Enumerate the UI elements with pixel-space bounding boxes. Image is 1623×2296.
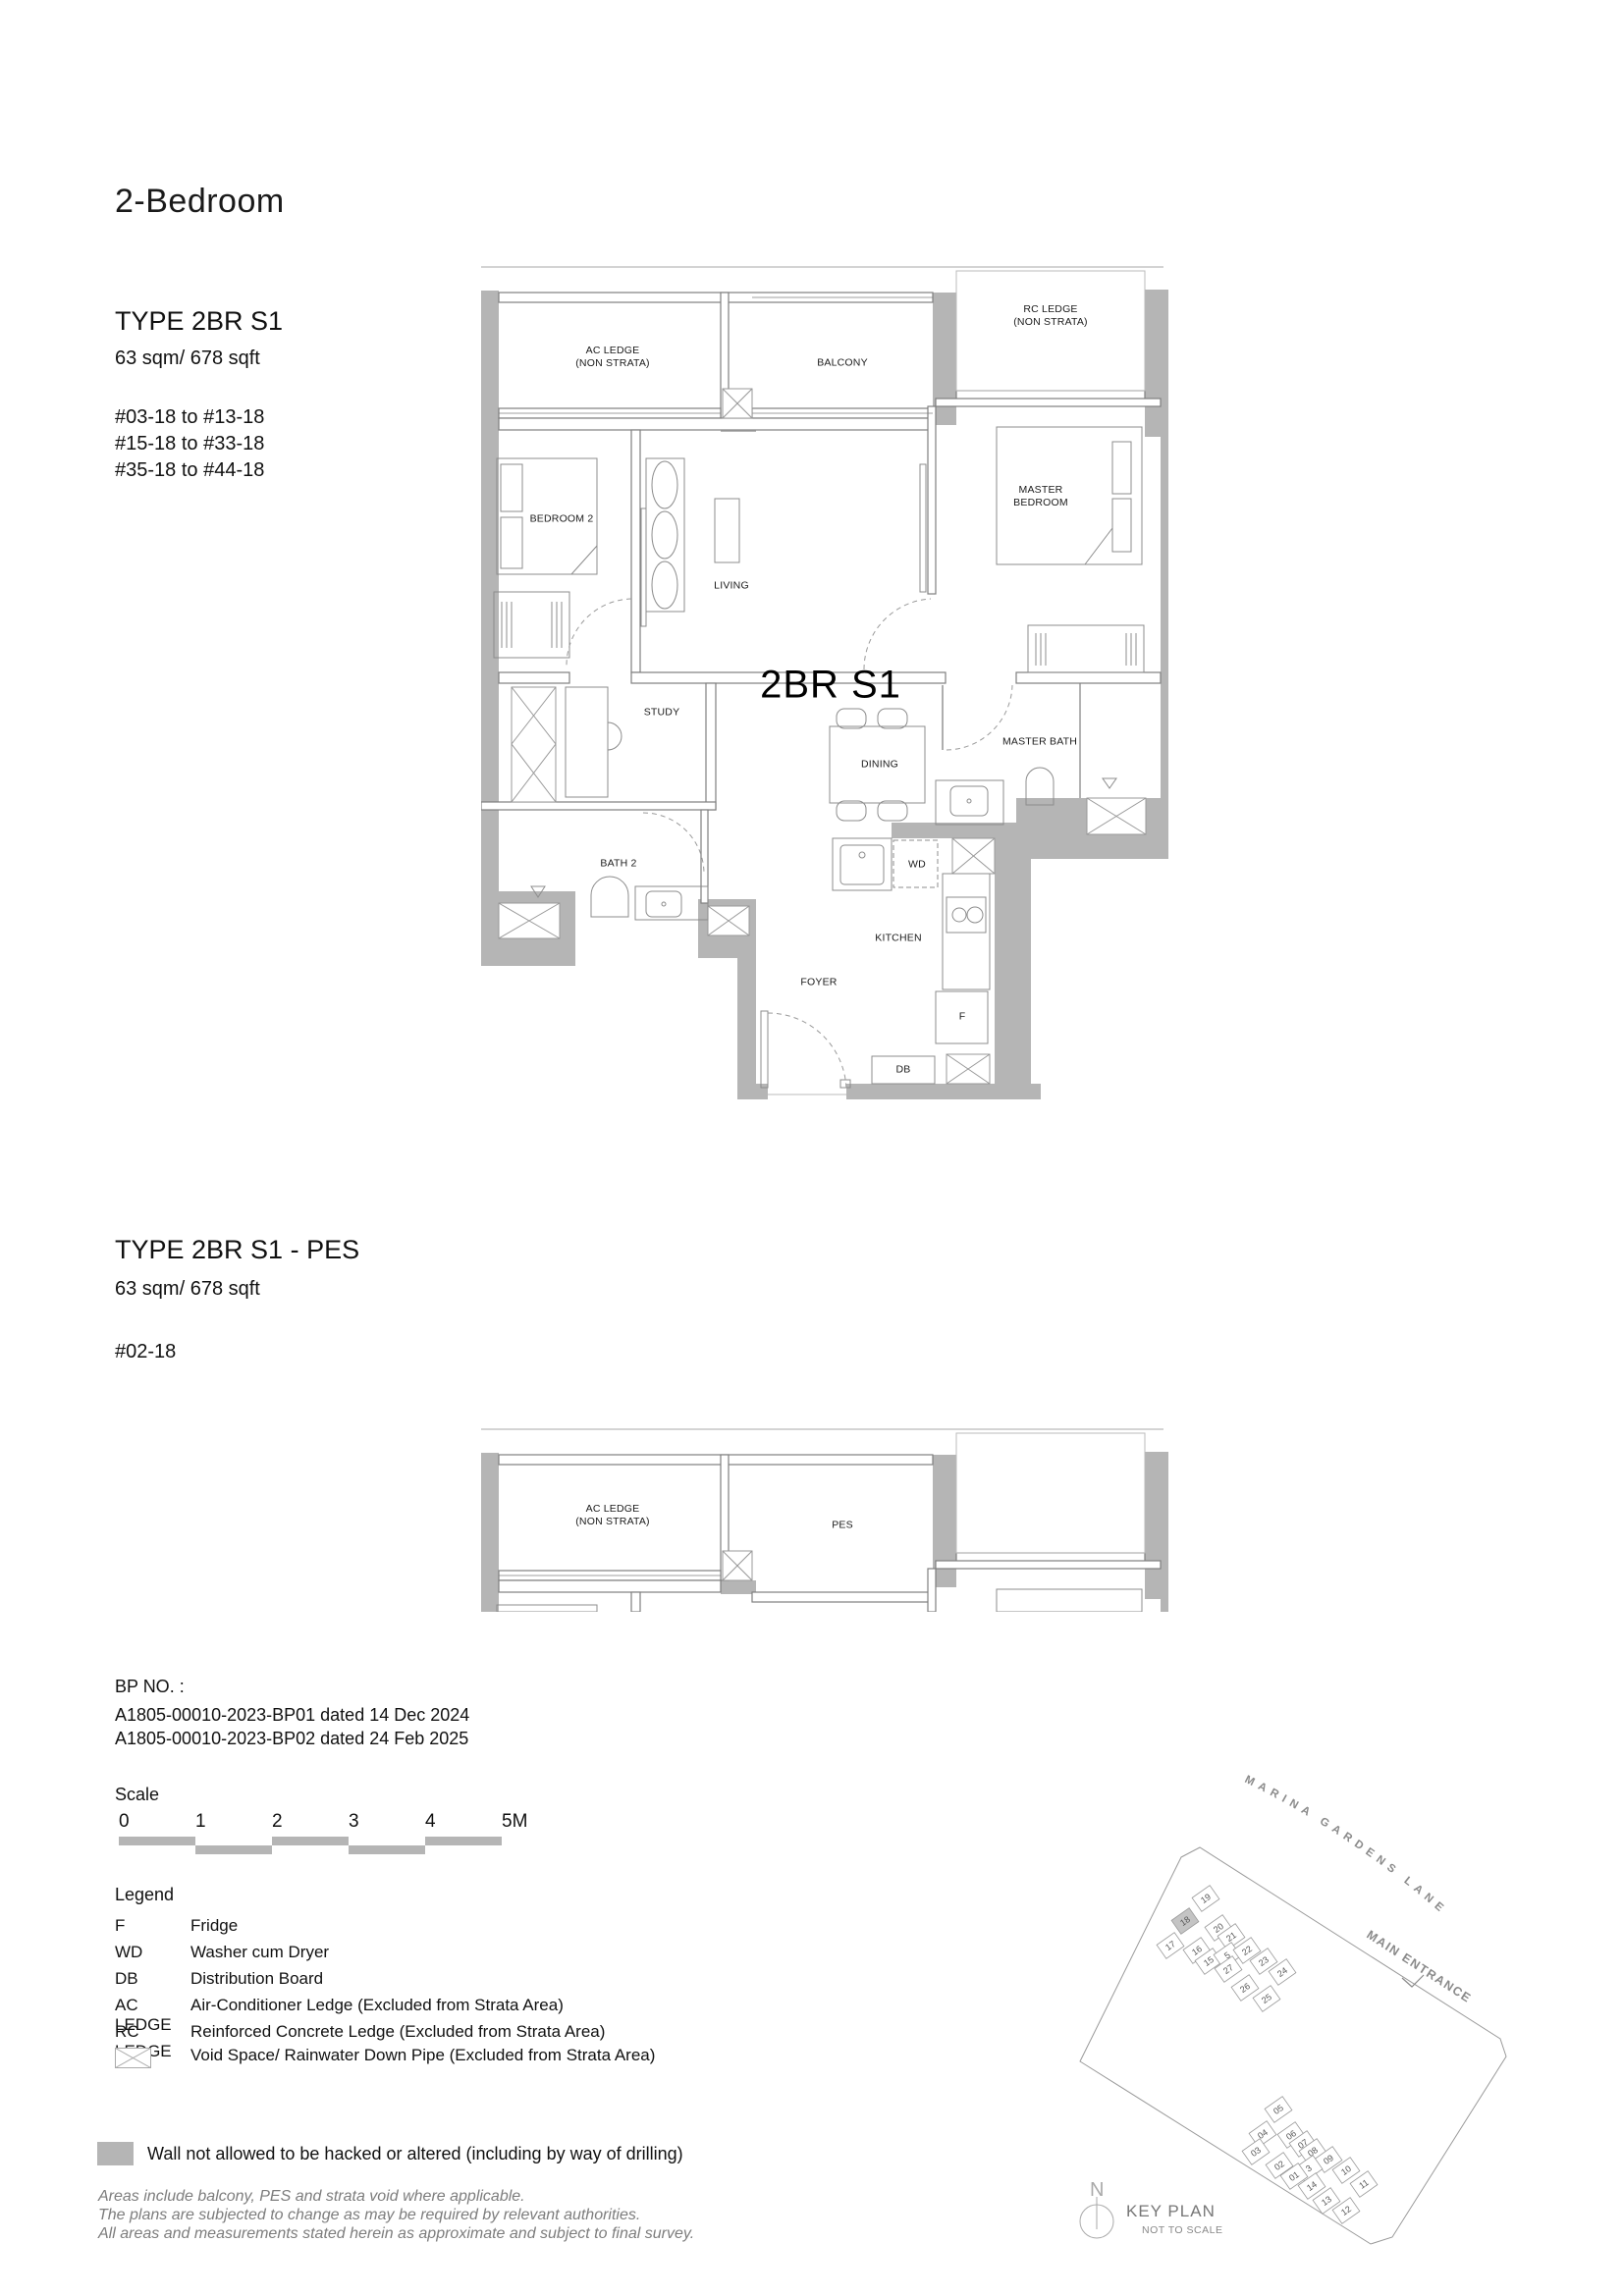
main-floorplan: AC LEDGE (NON STRATA) BALCONY RC LEDGE (… [481, 263, 1178, 1103]
void-box-kitchen [952, 838, 995, 874]
road-text: MARINA GARDENS LANE [1243, 1774, 1450, 1917]
label-rc-ledge: RC LEDGE (NON STRATA) [1011, 303, 1090, 329]
bp-heading: BP NO. : [115, 1675, 185, 1698]
svg-text:N: N [1090, 2179, 1104, 2201]
scale-tick: 5M [502, 1811, 527, 1833]
type1-units: #03-18 to #13-18#15-18 to #33-18#35-18 t… [115, 404, 264, 484]
unit-range: #03-18 to #13-18 [115, 404, 264, 431]
keyplan-unit-17: 17 [1157, 1933, 1184, 1959]
void-box-db [947, 1054, 990, 1084]
label-pes-ac-ledge: AC LEDGE (NON STRATA) [573, 1503, 652, 1528]
scale-bar: 0 1 2 3 4 5M [119, 1811, 531, 1856]
type2-units: #02-18 [115, 1339, 176, 1365]
label-unit-type: 2BR S1 [760, 664, 901, 708]
furniture [494, 427, 1144, 1095]
void-box-bottom-left [499, 903, 560, 938]
key-plan-drawing: MARINA GARDENS LANE MAIN ENTRANCE 191817… [1075, 1762, 1586, 2268]
label-pes: PES [832, 1520, 853, 1532]
scale-ticks: 0 1 2 3 4 5M [119, 1811, 531, 1835]
label-study: STUDY [644, 707, 680, 720]
type2-area: 63 sqm/ 678 sqft [115, 1276, 260, 1303]
scale-bar-segments [119, 1837, 531, 1856]
scale-tick: 2 [272, 1811, 283, 1833]
scale-tick: 3 [349, 1811, 359, 1833]
bp-line: A1805-00010-2023-BP02 dated 24 Feb 2025 [115, 1727, 469, 1750]
bp-lines: A1805-00010-2023-BP01 dated 14 Dec 2024A… [115, 1703, 469, 1750]
wall-note-text: Wall not allowed to be hacked or altered… [147, 2142, 683, 2165]
type1-area: 63 sqm/ 678 sqft [115, 346, 260, 372]
keyplan-unit-05: 05 [1265, 2097, 1292, 2123]
legend-void-desc: Void Space/ Rainwater Down Pipe (Exclude… [190, 2046, 665, 2065]
legend-list: F Fridge WD Washer cum Dryer DB Distribu… [115, 1916, 665, 2049]
north-compass-icon: N [1080, 2179, 1113, 2238]
disclaimer-line: All areas and measurements stated herein… [98, 2224, 694, 2243]
rc-ledge-outline [956, 271, 1145, 391]
legend-term: WD [115, 1943, 190, 1962]
legend-desc: Fridge [190, 1916, 665, 1936]
legend-desc: Washer cum Dryer [190, 1943, 665, 1962]
legend-heading: Legend [115, 1883, 174, 1906]
legend-term: F [115, 1916, 190, 1936]
label-fridge: F [959, 1011, 966, 1024]
void-box-tall-left [512, 687, 556, 802]
void-box-masterbath [1087, 798, 1146, 834]
label-db: DB [896, 1064, 911, 1077]
legend-row: AC LEDGE Air-Conditioner Ledge (Excluded… [115, 1996, 665, 2022]
disclaimer: Areas include balcony, PES and strata vo… [98, 2187, 694, 2243]
scale-label: Scale [115, 1783, 159, 1806]
legend-row: DB Distribution Board [115, 1969, 665, 1996]
key-plan: MARINA GARDENS LANE MAIN ENTRANCE 191817… [1075, 1762, 1586, 2268]
keyplan-unit-19: 19 [1192, 1886, 1219, 1912]
scale-tick: 4 [425, 1811, 436, 1833]
disclaimer-line: The plans are subjected to change as may… [98, 2206, 694, 2224]
type1-name: TYPE 2BR S1 [115, 306, 283, 337]
keyplan-cluster-a: 191817201621155222723262425 [1157, 1886, 1296, 2012]
unit-range: #02-18 [115, 1339, 176, 1365]
label-ac-ledge: AC LEDGE (NON STRATA) [573, 345, 652, 370]
keyplan-subtitle: NOT TO SCALE [1142, 2224, 1222, 2236]
pes-interior-walls [499, 1455, 1161, 1612]
void-box-acledge [723, 389, 752, 418]
legend-desc: Reinforced Concrete Ledge (Excluded from… [190, 2022, 665, 2042]
scale-tick: 1 [195, 1811, 206, 1833]
label-master-bedroom: MASTER BEDROOM [1001, 484, 1080, 509]
legend-term: DB [115, 1969, 190, 1989]
type2-name: TYPE 2BR S1 - PES [115, 1235, 359, 1265]
keyplan-unit-18: 18 [1171, 1908, 1199, 1935]
page-title: 2-Bedroom [115, 183, 285, 221]
label-wd: WD [908, 859, 926, 872]
legend-desc: Air-Conditioner Ledge (Excluded from Str… [190, 1996, 665, 2015]
master-bedroom-door-arc [864, 599, 931, 669]
disclaimer-line: Areas include balcony, PES and strata vo… [98, 2187, 694, 2206]
legend-desc: Distribution Board [190, 1969, 665, 1989]
label-balcony: BALCONY [817, 357, 868, 370]
pes-floorplan: AC LEDGE (NON STRATA) PES [481, 1425, 1178, 1612]
legend-void-row: Void Space/ Rainwater Down Pipe (Exclude… [115, 2048, 665, 2074]
label-master-bath: MASTER BATH [1001, 736, 1079, 749]
scale-tick: 0 [119, 1811, 130, 1833]
floorplan-page: 2-Bedroom TYPE 2BR S1 63 sqm/ 678 sqft #… [0, 0, 1623, 2296]
bp-line: A1805-00010-2023-BP01 dated 14 Dec 2024 [115, 1703, 469, 1727]
wall-swatch-icon [97, 2142, 134, 2165]
bedroom2-door-arc [567, 599, 631, 666]
pes-void-box [723, 1551, 752, 1580]
keyplan-title: KEY PLAN [1126, 2202, 1216, 2220]
unit-range: #15-18 to #33-18 [115, 431, 264, 457]
wall-note: Wall not allowed to be hacked or altered… [97, 2142, 843, 2165]
keyplan-cluster-b: 05040603070802093011014111312 [1242, 2097, 1378, 2224]
legend-row: F Fridge [115, 1916, 665, 1943]
legend-row: RC LEDGE Reinforced Concrete Ledge (Excl… [115, 2022, 665, 2049]
void-box-corridor [708, 906, 749, 935]
legend-row: WD Washer cum Dryer [115, 1943, 665, 1969]
road-label: MARINA GARDENS LANE [1243, 1774, 1450, 1917]
main-entrance-label: MAIN ENTRANCE [1364, 1928, 1474, 2005]
label-kitchen: KITCHEN [875, 933, 922, 945]
label-bath2: BATH 2 [600, 858, 636, 871]
label-foyer: FOYER [800, 977, 837, 989]
main-entrance-arrow-icon [1402, 1975, 1424, 1987]
bath2-door-arc [643, 813, 704, 874]
label-bedroom2: BEDROOM 2 [530, 513, 594, 526]
void-space-icon [115, 2048, 190, 2073]
label-living: LIVING [714, 580, 749, 593]
unit-range: #35-18 to #44-18 [115, 457, 264, 484]
entrance-door-arc [768, 1013, 846, 1092]
label-dining: DINING [861, 759, 898, 772]
